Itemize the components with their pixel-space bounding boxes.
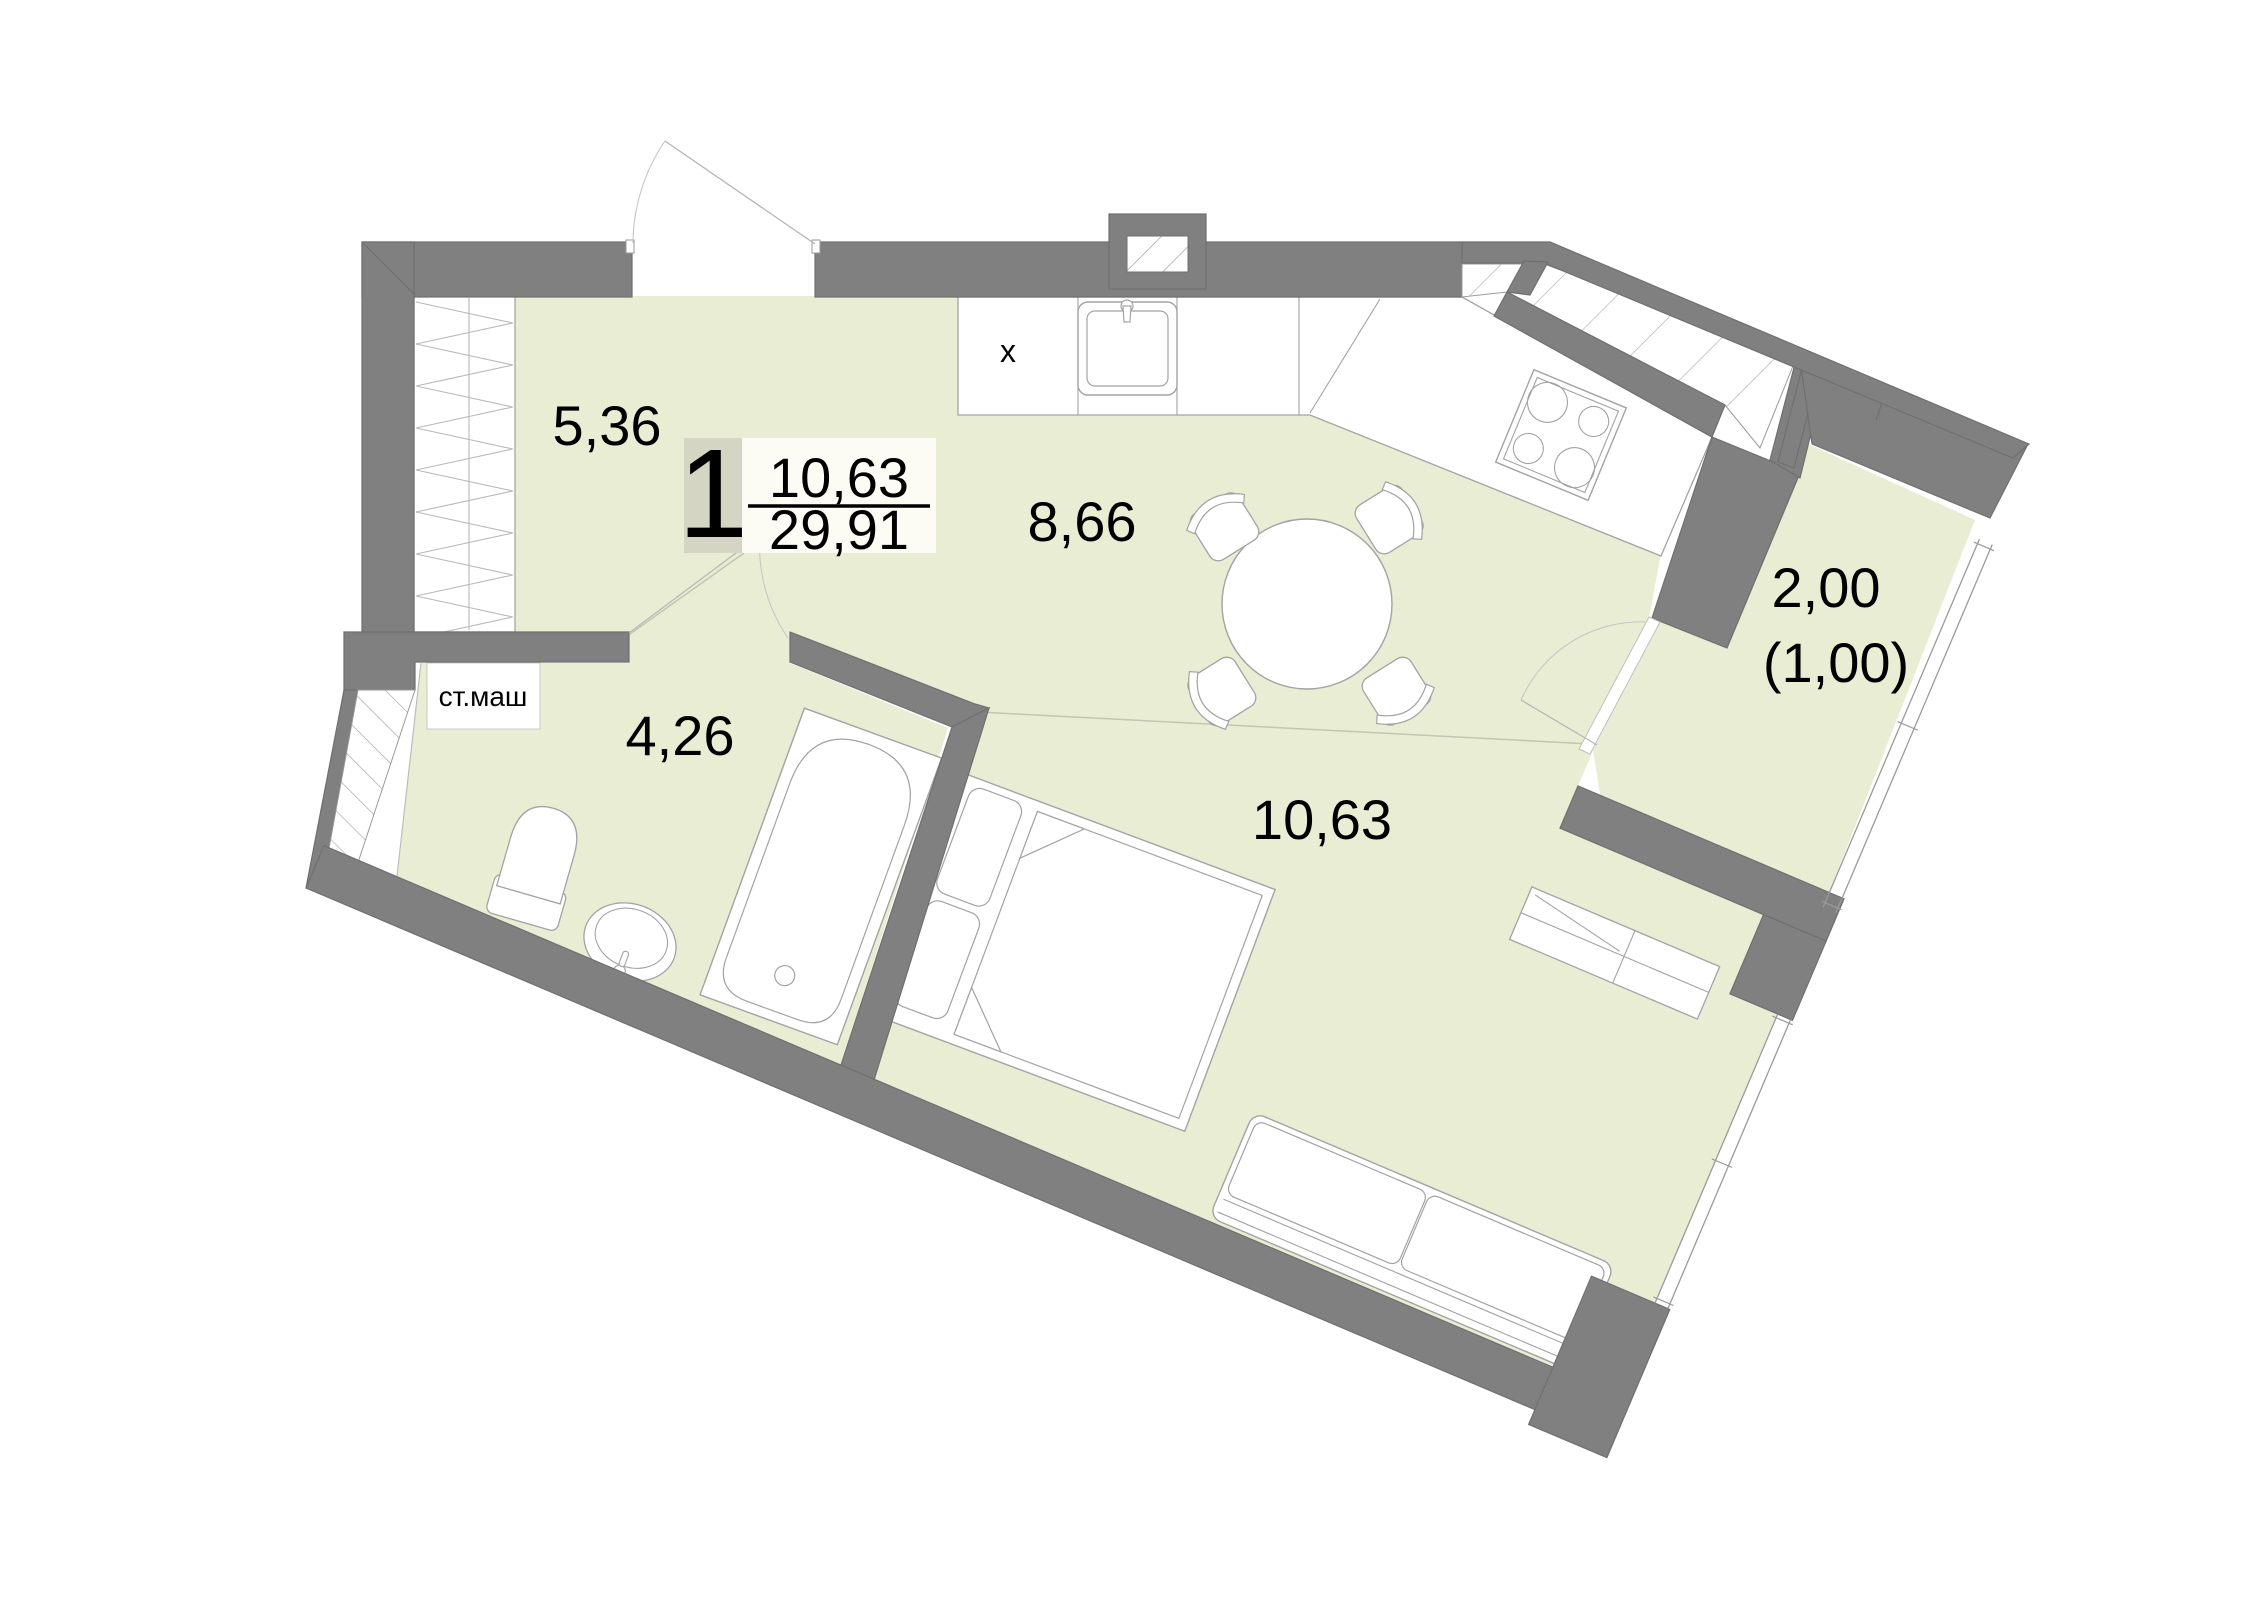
svg-text:2,00: 2,00 bbox=[1772, 556, 1881, 619]
svg-text:4,26: 4,26 bbox=[626, 704, 735, 767]
svg-text:(1,00): (1,00) bbox=[1763, 631, 1909, 694]
svg-text:10,63: 10,63 bbox=[1252, 788, 1392, 851]
svg-text:1: 1 bbox=[678, 423, 748, 564]
svg-text:29,91: 29,91 bbox=[769, 498, 909, 561]
svg-text:8,66: 8,66 bbox=[1028, 490, 1137, 553]
svg-text:ст.маш: ст.маш bbox=[439, 681, 528, 712]
svg-text:5,36: 5,36 bbox=[553, 394, 662, 457]
svg-text:x: x bbox=[1000, 333, 1016, 369]
